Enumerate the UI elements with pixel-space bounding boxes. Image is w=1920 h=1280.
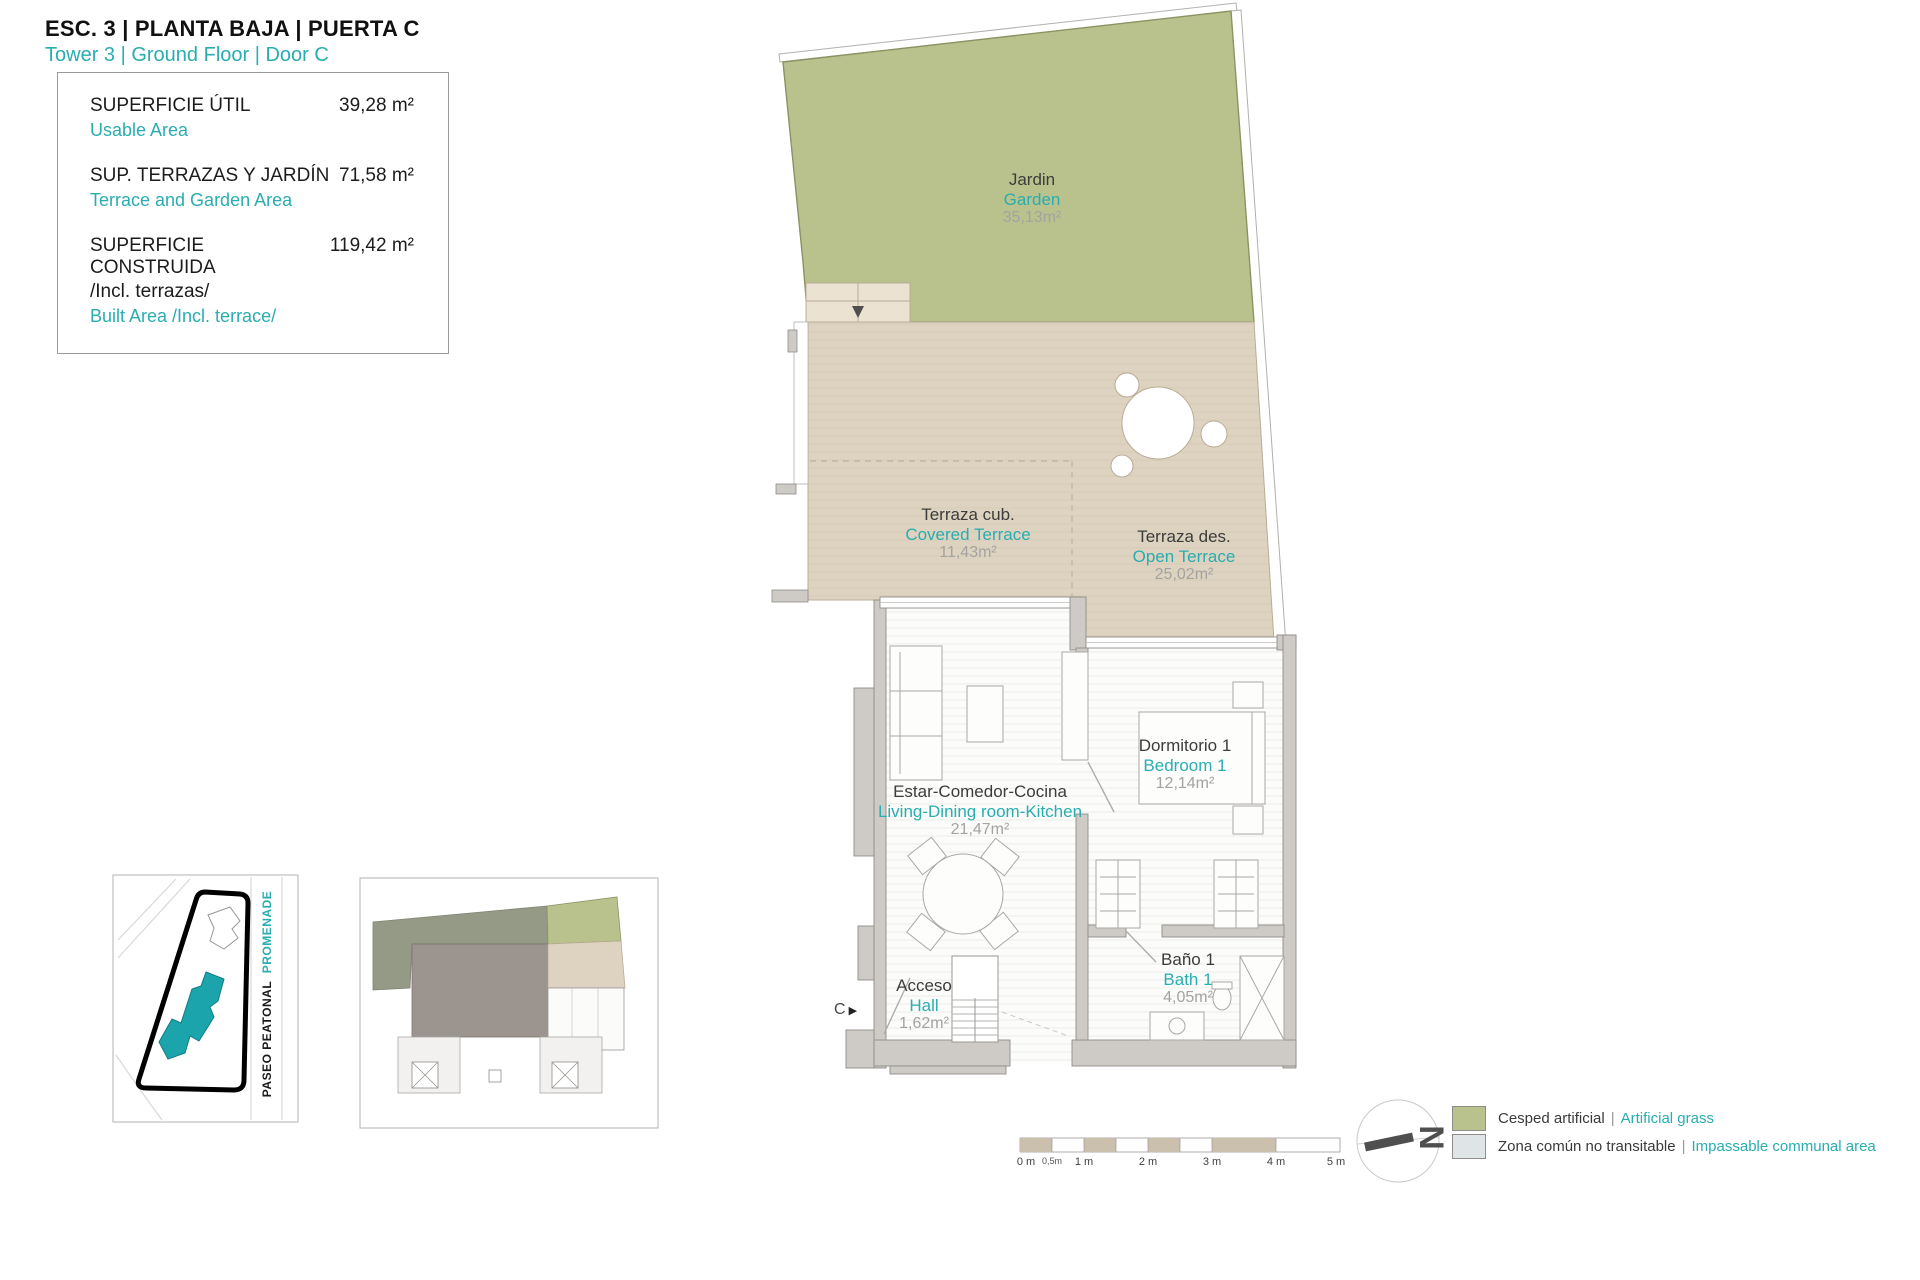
- terrace-zone: [772, 322, 1274, 642]
- scale-tick-2m: 2 m: [1139, 1156, 1157, 1168]
- room-label-bedroom1: Dormitorio 1 Bedroom 1 12,14m²: [1139, 736, 1232, 793]
- room-label-hall: Acceso Hall 1,62m²: [896, 976, 952, 1033]
- scale-tick-3m: 3 m: [1203, 1156, 1221, 1168]
- built-area-label-en: Built Area /Incl. terrace/: [90, 306, 414, 327]
- room-label-living: Estar-Comedor-Cocina Living-Dining room-…: [878, 782, 1082, 839]
- surface-info-box: SUPERFICIE ÚTIL 39,28 m² Usable Area SUP…: [57, 72, 449, 354]
- scale-tick-5m: 5 m: [1327, 1156, 1345, 1168]
- scale-tick-05m: 0,5m: [1042, 1156, 1062, 1166]
- terrace-garden-area-label-en: Terrace and Garden Area: [90, 190, 414, 211]
- terrace-garden-area-row: SUP. TERRAZAS Y JARDÍN 71,58 m² Terrace …: [90, 165, 414, 211]
- entrance-door-marker: C ▶: [834, 1001, 857, 1019]
- entrance-direction-icon: ▶: [849, 1004, 857, 1017]
- built-area-row: SUPERFICIE CONSTRUIDA 119,42 m² /Incl. t…: [90, 235, 414, 327]
- scale-tick-0m: 0 m: [1017, 1156, 1035, 1168]
- legend-swatch-communal: [1452, 1134, 1486, 1159]
- usable-area-row: SUPERFICIE ÚTIL 39,28 m² Usable Area: [90, 95, 414, 141]
- room-label-open-terrace: Terraza des. Open Terrace 25,02m²: [1133, 527, 1236, 584]
- entrance-door-label: C: [834, 1001, 846, 1019]
- usable-area-label-en: Usable Area: [90, 120, 414, 141]
- floor-plan-sheet: ESC. 3 | PLANTA BAJA | PUERTA C Tower 3 …: [0, 0, 1920, 1280]
- room-label-garden: Jardin Garden 35,13m²: [1003, 170, 1062, 227]
- terrace-garden-area-value: 71,58 m²: [339, 165, 414, 187]
- north-letter: N: [1411, 1125, 1450, 1150]
- legend-swatch-grass: [1452, 1106, 1486, 1131]
- usable-area-label: SUPERFICIE ÚTIL: [90, 95, 250, 117]
- terrace-garden-area-label: SUP. TERRAZAS Y JARDÍN: [90, 165, 329, 187]
- legend-communal-label-en: Impassable communal area: [1692, 1138, 1876, 1155]
- street-label-paseo-peatonal: PASEO PEATONAL: [260, 964, 274, 1114]
- built-area-label: SUPERFICIE CONSTRUIDA: [90, 235, 330, 279]
- legend-row-communal: Zona común no transitable|Impassable com…: [1498, 1138, 1876, 1155]
- scale-bar: [1020, 1138, 1340, 1152]
- page-title: ESC. 3 | PLANTA BAJA | PUERTA C: [45, 16, 420, 42]
- usable-area-value: 39,28 m²: [339, 95, 414, 117]
- built-area-value: 119,42 m²: [330, 235, 414, 257]
- room-label-covered-terrace: Terraza cub. Covered Terrace 11,43m²: [905, 505, 1030, 562]
- legend-separator: |: [1605, 1110, 1621, 1127]
- legend-grass-label-en: Artificial grass: [1621, 1110, 1714, 1127]
- legend-row-grass: Cesped artificial|Artificial grass: [1498, 1110, 1714, 1127]
- built-area-label-extra: /Incl. terrazas/: [90, 281, 414, 303]
- scale-tick-4m: 4 m: [1267, 1156, 1285, 1168]
- room-label-bath1: Baño 1 Bath 1 4,05m²: [1161, 950, 1215, 1007]
- legend-grass-label: Cesped artificial: [1498, 1110, 1605, 1127]
- legend-separator: |: [1676, 1138, 1692, 1155]
- page-subtitle: Tower 3 | Ground Floor | Door C: [45, 44, 329, 67]
- key-plan-mini: [360, 878, 658, 1128]
- scale-tick-1m: 1 m: [1075, 1156, 1093, 1168]
- legend-communal-label: Zona común no transitable: [1498, 1138, 1676, 1155]
